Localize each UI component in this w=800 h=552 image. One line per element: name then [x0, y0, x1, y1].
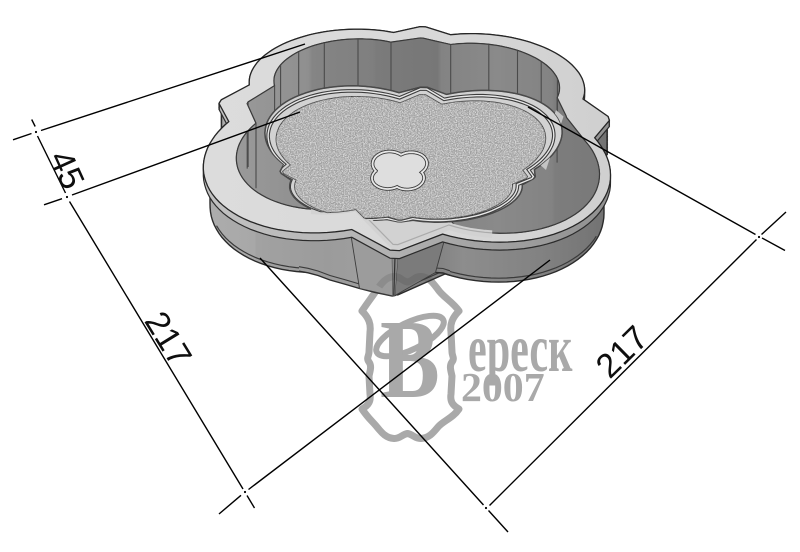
svg-text:2007: 2007	[461, 364, 545, 410]
svg-text:В: В	[380, 298, 440, 422]
